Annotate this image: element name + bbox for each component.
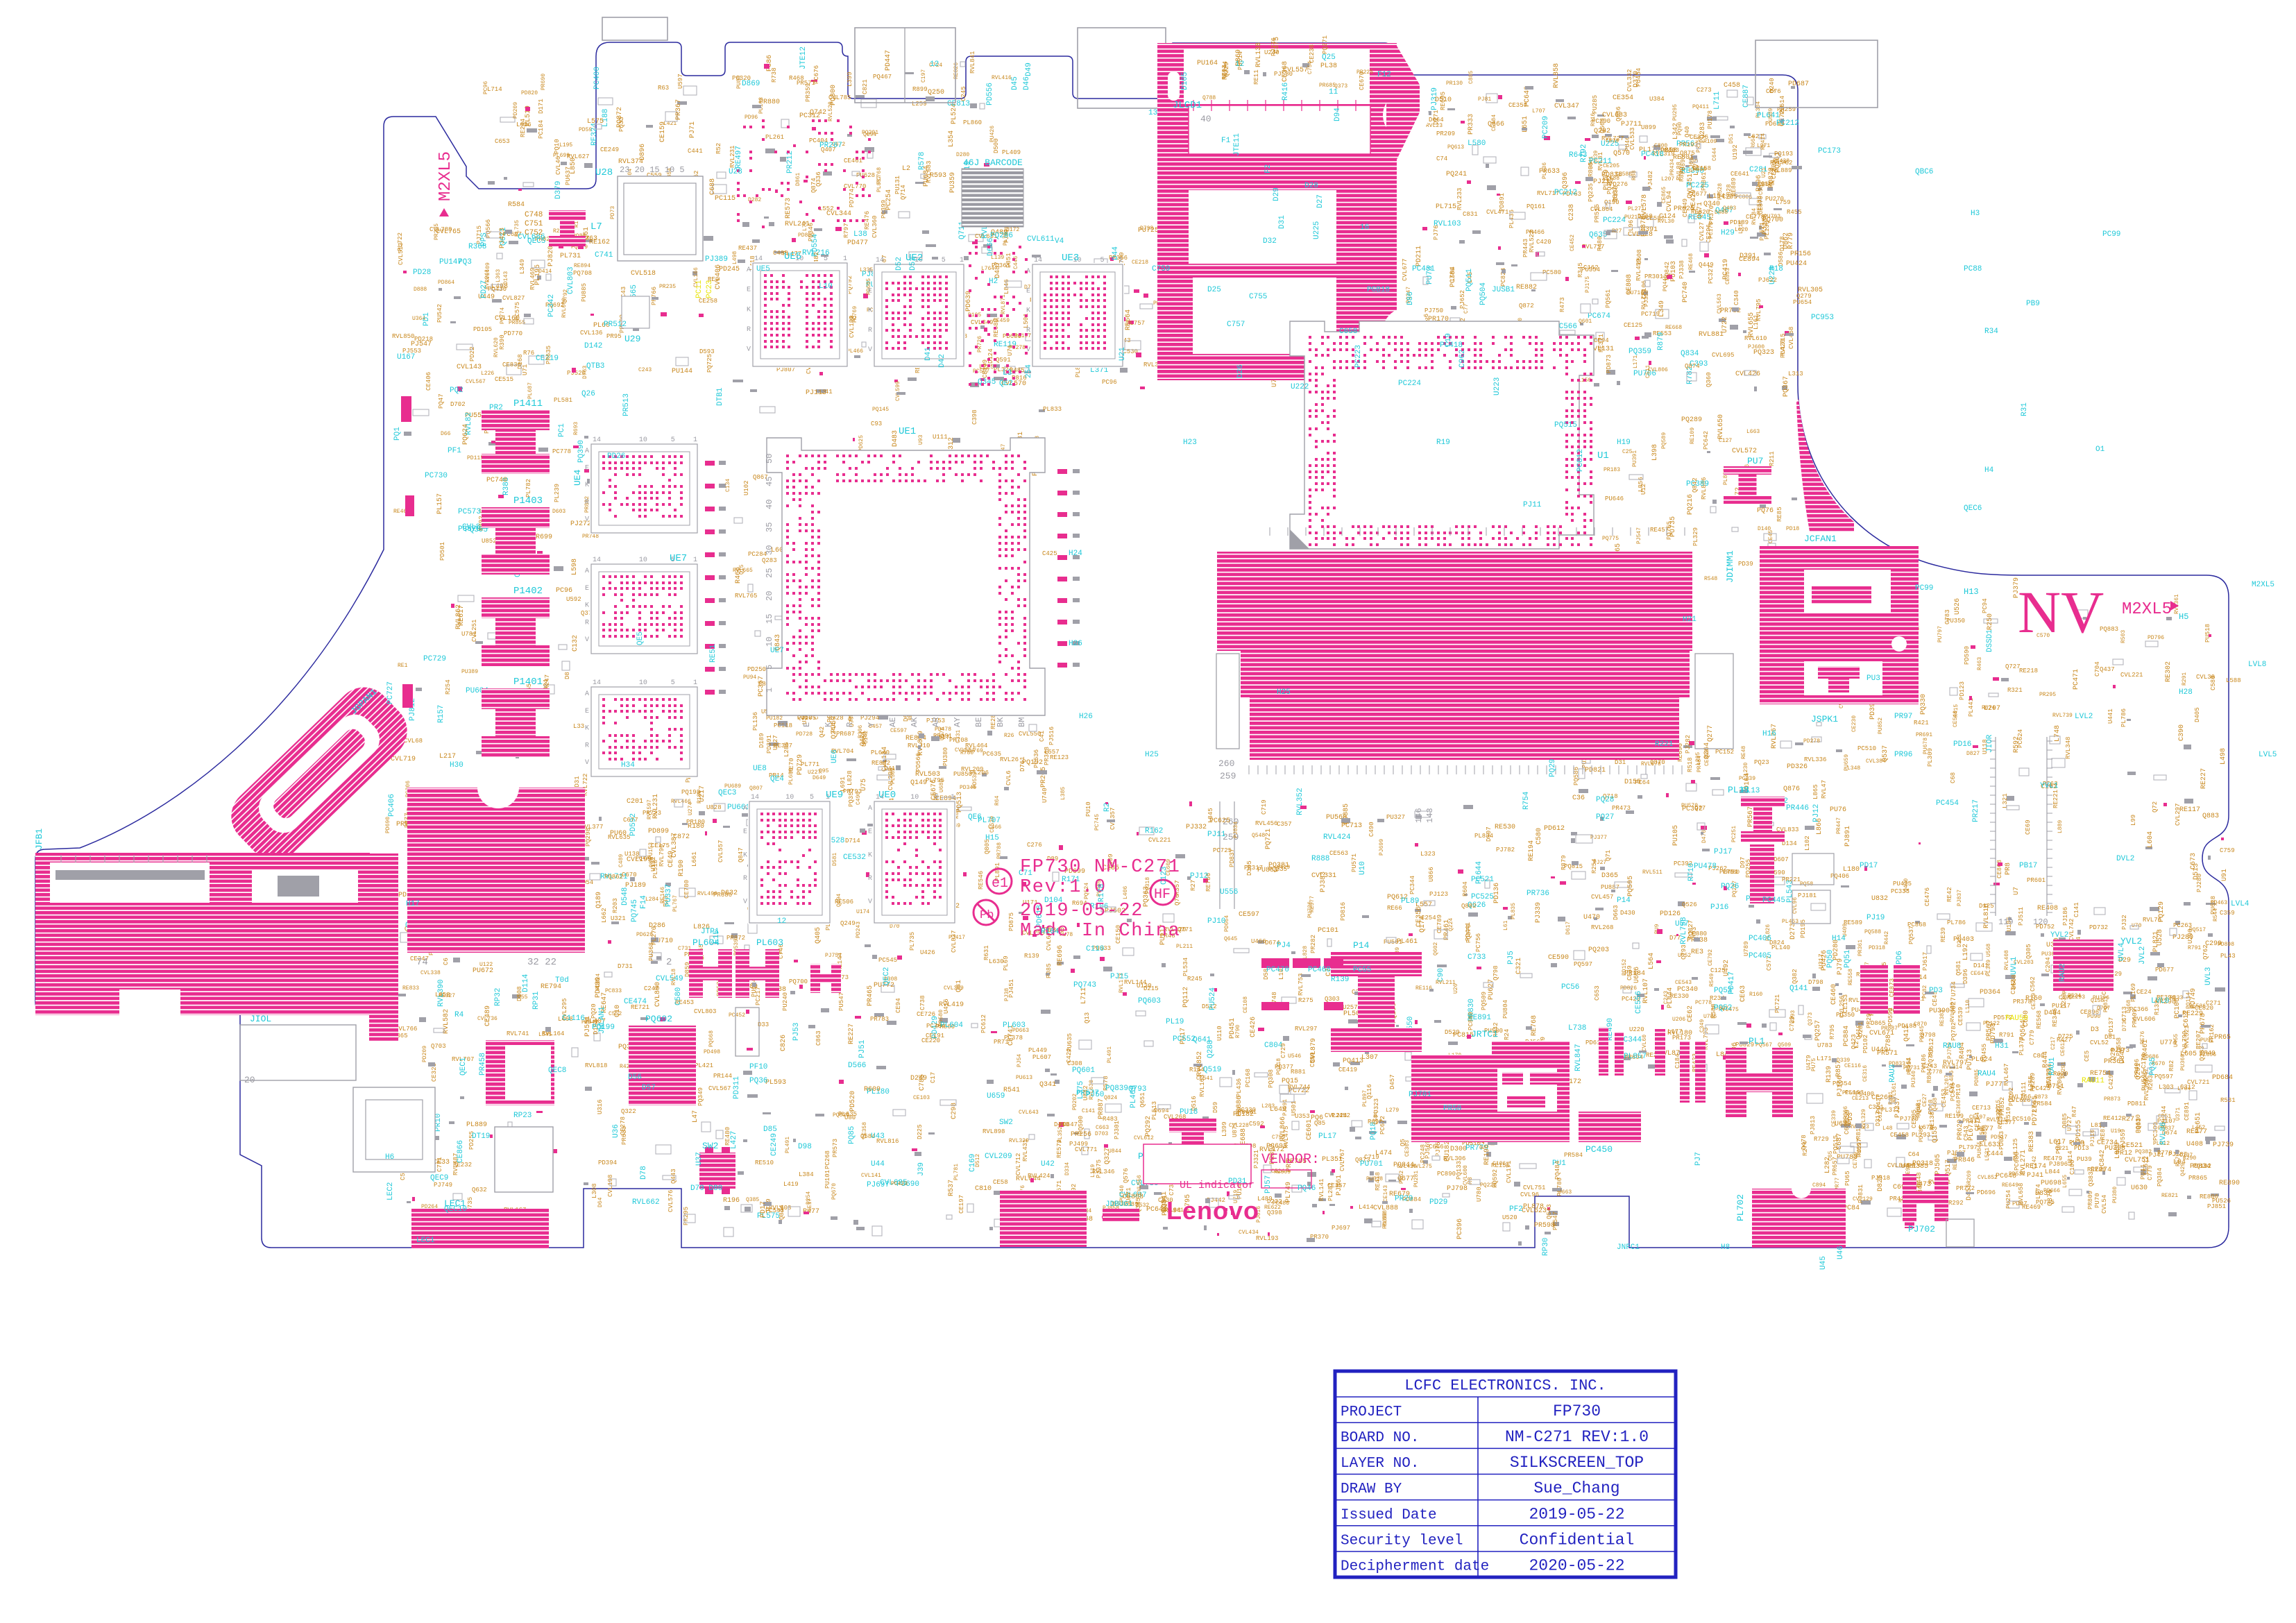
- svg-text:L282: L282: [1824, 1157, 1832, 1173]
- svg-text:PL680: PL680: [788, 768, 794, 785]
- svg-text:PC570: PC570: [458, 525, 481, 534]
- svg-text:PD155: PD155: [2075, 1120, 2083, 1141]
- svg-text:PQ513: PQ513: [956, 792, 964, 813]
- svg-text:PJ17: PJ17: [1714, 848, 1732, 856]
- svg-text:PJ19: PJ19: [1866, 914, 1885, 922]
- svg-text:PQ359: PQ359: [1629, 348, 1651, 356]
- svg-text:PD96: PD96: [745, 114, 758, 121]
- svg-text:PQ330: PQ330: [1920, 694, 1928, 715]
- svg-text:SW2: SW2: [702, 1141, 718, 1151]
- svg-text:PC740: PC740: [1682, 282, 1690, 303]
- svg-text:PU850: PU850: [953, 771, 972, 778]
- svg-text:PQ602: PQ602: [645, 1014, 672, 1024]
- svg-text:PC452: PC452: [729, 1012, 745, 1019]
- svg-text:U12: U12: [1640, 484, 1647, 495]
- svg-text:R754: R754: [1522, 791, 1531, 810]
- svg-text:H34: H34: [621, 761, 635, 770]
- svg-text:PR65: PR65: [2214, 1034, 2231, 1042]
- svg-text:RVL469: RVL469: [529, 268, 536, 290]
- svg-text:PC778: PC778: [552, 448, 571, 455]
- svg-text:CE125: CE125: [1624, 322, 1642, 329]
- svg-text:R797: R797: [843, 223, 850, 238]
- svg-text:PD816: PD816: [1340, 902, 1347, 921]
- svg-text:PD447: PD447: [885, 50, 892, 71]
- svg-text:D97: D97: [1740, 857, 1746, 868]
- svg-text:U122: U122: [479, 962, 493, 968]
- svg-text:PQ2: PQ2: [450, 386, 464, 395]
- svg-text:PC88: PC88: [1964, 265, 1982, 273]
- svg-text:L759: L759: [1776, 199, 1791, 206]
- svg-text:R274: R274: [1802, 1141, 1809, 1156]
- svg-text:H28: H28: [2179, 688, 2193, 697]
- svg-text:CVL297: CVL297: [2175, 804, 2182, 826]
- svg-text:NV: NV: [2018, 579, 2104, 645]
- svg-text:PD17: PD17: [760, 1201, 767, 1218]
- svg-text:PD123: PD123: [1959, 681, 1966, 700]
- svg-text:U225: U225: [1313, 221, 1321, 239]
- svg-text:U321: U321: [611, 915, 626, 922]
- svg-text:RVL741: RVL741: [507, 1030, 529, 1037]
- svg-text:PR571: PR571: [1877, 1050, 1898, 1057]
- svg-text:PD61: PD61: [1585, 1039, 1601, 1046]
- svg-text:A: A: [868, 268, 872, 275]
- svg-text:PJ77: PJ77: [1986, 1081, 2002, 1089]
- svg-text:PD441: PD441: [1465, 922, 1472, 941]
- svg-text:L575: L575: [587, 118, 604, 126]
- svg-text:H6: H6: [385, 1153, 394, 1162]
- svg-text:H4: H4: [1984, 466, 1994, 475]
- svg-text:PC612: PC612: [980, 1014, 987, 1033]
- svg-text:C238: C238: [1568, 204, 1576, 221]
- svg-text:RVL193: RVL193: [1256, 1235, 1278, 1242]
- svg-text:D586: D586: [1778, 251, 1785, 266]
- svg-text:U174: U174: [856, 909, 869, 915]
- svg-text:D649: D649: [813, 775, 826, 781]
- svg-text:CVL60: CVL60: [1642, 1035, 1648, 1051]
- svg-text:Q396: Q396: [1562, 172, 1570, 189]
- svg-text:RVL336: RVL336: [1804, 756, 1826, 763]
- svg-text:CVL331: CVL331: [1311, 872, 1336, 880]
- svg-text:CE452: CE452: [1570, 235, 1576, 251]
- svg-text:JIOR: JIOR: [1986, 734, 1994, 753]
- svg-text:D142: D142: [584, 342, 602, 350]
- svg-text:D457: D457: [1389, 1074, 1396, 1089]
- svg-text:RVL522: RVL522: [1529, 230, 1536, 253]
- svg-text:Q407: Q407: [821, 146, 836, 153]
- svg-text:PC727: PC727: [386, 681, 395, 704]
- svg-text:C321: C321: [1515, 958, 1523, 974]
- svg-text:E: E: [585, 585, 589, 593]
- svg-text:U426: U426: [920, 949, 935, 956]
- svg-text:RVL561: RVL561: [1891, 1082, 1898, 1103]
- svg-text:R203: R203: [612, 898, 619, 913]
- svg-text:U192: U192: [1732, 144, 1739, 160]
- svg-text:CVL751: CVL751: [2125, 1157, 2150, 1164]
- svg-text:PJ10: PJ10: [1207, 917, 1225, 926]
- svg-text:PU281: PU281: [1413, 1171, 1420, 1187]
- svg-text:L33: L33: [573, 723, 584, 730]
- svg-text:RVL86: RVL86: [2159, 1122, 2168, 1145]
- svg-text:CE521: CE521: [2122, 1142, 2143, 1150]
- svg-text:RVL141: RVL141: [1318, 1179, 1325, 1201]
- svg-text:CE249: CE249: [770, 1133, 779, 1156]
- svg-text:PC212: PC212: [1776, 119, 1799, 128]
- svg-text:Q793: Q793: [1128, 1085, 1146, 1094]
- svg-text:PC209: PC209: [1542, 116, 1550, 139]
- svg-text:5: 5: [935, 794, 939, 801]
- svg-text:PU144: PU144: [672, 368, 692, 375]
- svg-text:H26: H26: [1079, 713, 1093, 721]
- svg-text:U132: U132: [650, 856, 657, 872]
- svg-text:U227: U227: [808, 770, 821, 776]
- svg-text:D94: D94: [1334, 108, 1342, 121]
- svg-text:CE808: CE808: [1626, 274, 1633, 295]
- svg-text:PL751: PL751: [1719, 869, 1738, 876]
- svg-text:C466: C466: [988, 824, 1001, 831]
- svg-text:PQ271: PQ271: [1322, 35, 1329, 54]
- svg-text:PL782: PL782: [525, 479, 532, 498]
- svg-text:1: 1: [843, 255, 847, 263]
- svg-text:D29: D29: [1273, 187, 1281, 201]
- svg-text:PJ181: PJ181: [1798, 892, 1817, 899]
- svg-text:C254: C254: [1421, 915, 1436, 921]
- svg-text:PC23: PC23: [706, 280, 714, 298]
- svg-text:PL491: PL491: [1107, 1046, 1113, 1063]
- svg-text:CVL96: CVL96: [1792, 897, 1798, 914]
- svg-text:Q20: Q20: [2110, 1048, 2118, 1060]
- svg-text:A: A: [585, 568, 589, 575]
- svg-text:UVL4: UVL4: [2118, 942, 2126, 961]
- svg-text:PC389: PC389: [1686, 480, 1709, 488]
- svg-text:CE887: CE887: [1742, 85, 1751, 108]
- svg-text:PL421: PL421: [695, 1062, 713, 1069]
- svg-text:12: 12: [930, 60, 939, 69]
- svg-text:CVL656: CVL656: [1137, 1175, 1143, 1195]
- svg-text:U492: U492: [1723, 960, 1730, 976]
- svg-text:RVL818: RVL818: [585, 1062, 607, 1069]
- svg-text:PD498: PD498: [704, 1049, 720, 1055]
- svg-text:D225: D225: [917, 1124, 924, 1139]
- svg-text:14: 14: [1034, 257, 1042, 264]
- svg-text:Sue_Chang: Sue_Chang: [1533, 1479, 1619, 1497]
- svg-text:Q548: Q548: [1252, 833, 1265, 839]
- svg-text:D379: D379: [554, 181, 563, 199]
- svg-text:D77: D77: [1669, 935, 1681, 942]
- svg-text:RE229: RE229: [2182, 1010, 2203, 1018]
- svg-text:PC64: PC64: [1635, 779, 1650, 786]
- svg-text:PJ749: PJ749: [2190, 988, 2197, 1009]
- svg-text:Q303: Q303: [1325, 996, 1340, 1003]
- svg-text:PD698: PD698: [1382, 1212, 1388, 1229]
- svg-text:CVL712: CVL712: [1015, 1153, 1022, 1175]
- svg-text:L354: L354: [948, 130, 955, 147]
- svg-text:PF10: PF10: [749, 1063, 767, 1071]
- svg-text:U734: U734: [1950, 981, 1957, 996]
- svg-text:CVL677: CVL677: [1402, 259, 1409, 281]
- svg-text:PL169: PL169: [2130, 983, 2137, 1002]
- svg-text:12: 12: [1235, 60, 1244, 69]
- svg-text:PL329: PL329: [1692, 527, 1699, 546]
- svg-text:RE882: RE882: [1516, 284, 1537, 291]
- svg-text:R: R: [585, 619, 589, 627]
- svg-text:C245: C245: [960, 86, 967, 101]
- svg-text:U44: U44: [871, 1160, 885, 1169]
- svg-text:C340: C340: [1733, 290, 1740, 305]
- svg-text:PC833: PC833: [605, 988, 622, 994]
- svg-text:PC450: PC450: [1585, 1144, 1613, 1155]
- svg-text:LEC1: LEC1: [416, 1237, 435, 1245]
- svg-text:Q883: Q883: [2202, 813, 2219, 820]
- svg-text:R291: R291: [2182, 672, 2188, 686]
- svg-text:H31: H31: [1995, 1042, 2009, 1051]
- svg-text:Q882: Q882: [1461, 903, 1477, 910]
- svg-text:RVL408: RVL408: [2004, 950, 2010, 970]
- svg-text:L323: L323: [1420, 851, 1436, 858]
- svg-text:CE218: CE218: [1132, 260, 1148, 266]
- svg-text:PQ53: PQ53: [1714, 987, 1732, 995]
- svg-text:V: V: [585, 759, 589, 767]
- svg-text:RVL511: RVL511: [1642, 869, 1663, 876]
- svg-text:U316: U316: [597, 1099, 604, 1114]
- svg-text:PR217: PR217: [1972, 799, 1980, 822]
- svg-text:H21: H21: [1683, 615, 1697, 624]
- svg-text:5: 5: [824, 255, 828, 263]
- svg-text:L321: L321: [2002, 793, 2009, 808]
- svg-text:PQ589: PQ589: [1661, 432, 1667, 449]
- svg-text:D41: D41: [924, 347, 933, 361]
- svg-text:PC431: PC431: [1412, 265, 1435, 273]
- svg-text:PR301: PR301: [1644, 273, 1663, 280]
- svg-text:R250: R250: [1987, 613, 1994, 630]
- svg-text:L207: L207: [1661, 176, 1674, 182]
- svg-text:U871: U871: [1232, 1122, 1239, 1137]
- svg-text:PC86: PC86: [766, 55, 774, 71]
- svg-text:PQ500: PQ500: [1078, 1116, 1085, 1135]
- svg-text:RVL739: RVL739: [2052, 713, 2073, 719]
- svg-text:D281: D281: [1857, 1021, 1864, 1037]
- svg-text:R139: R139: [1331, 976, 1349, 984]
- svg-text:LVL0: LVL0: [2151, 997, 2169, 1005]
- svg-text:PQ10: PQ10: [554, 139, 561, 154]
- svg-text:PU885: PU885: [581, 283, 588, 302]
- svg-text:C894: C894: [1812, 1182, 1826, 1189]
- svg-text:CVL224: CVL224: [1325, 1112, 1347, 1119]
- svg-text:RVL180: RVL180: [1667, 1030, 1692, 1037]
- svg-text:H15: H15: [985, 834, 999, 842]
- svg-text:20: 20: [765, 591, 774, 601]
- svg-text:PL491: PL491: [785, 1137, 791, 1153]
- svg-text:R: R: [743, 875, 747, 883]
- svg-text:PQ193: PQ193: [1774, 151, 1793, 158]
- svg-text:PL349: PL349: [1986, 960, 1992, 976]
- svg-text:PL635: PL635: [838, 1111, 857, 1118]
- svg-text:PJ12: PJ12: [1190, 872, 1208, 881]
- svg-text:RE577: RE577: [1309, 896, 1316, 912]
- svg-text:Q42: Q42: [819, 726, 826, 738]
- svg-text:PU3: PU3: [1866, 674, 1880, 683]
- svg-text:U371: U371: [2175, 1107, 2182, 1121]
- svg-text:R170: R170: [1098, 884, 1106, 902]
- svg-text:DT19: DT19: [472, 1132, 490, 1141]
- svg-text:PD27: PD27: [480, 280, 488, 298]
- svg-text:L96: L96: [1628, 220, 1635, 231]
- svg-text:D430: D430: [1620, 910, 1635, 917]
- svg-text:Q26: Q26: [581, 390, 595, 398]
- svg-text:L81: L81: [2091, 1122, 2102, 1129]
- svg-text:P1411: P1411: [513, 398, 543, 409]
- svg-text:U786: U786: [1703, 1014, 1717, 1020]
- svg-text:U470: U470: [1583, 914, 1600, 921]
- svg-text:CVL171: CVL171: [1506, 1161, 1513, 1183]
- svg-text:5: 5: [671, 436, 675, 444]
- svg-text:Q437: Q437: [2100, 666, 2115, 673]
- svg-text:R139: R139: [1024, 953, 1039, 960]
- svg-text:PD732: PD732: [2089, 924, 2108, 931]
- svg-text:C273: C273: [1697, 87, 1712, 94]
- svg-text:PR97: PR97: [1894, 713, 1912, 721]
- svg-text:U222: U222: [1291, 383, 1309, 391]
- svg-text:Q189: Q189: [595, 892, 603, 908]
- svg-text:PL420: PL420: [1780, 339, 1787, 358]
- svg-text:PU424: PU424: [1786, 260, 1807, 268]
- svg-text:PR156: PR156: [1790, 250, 1811, 258]
- svg-text:PL857: PL857: [1624, 1053, 1647, 1061]
- svg-text:CVL209: CVL209: [985, 1153, 1012, 1161]
- svg-text:H8: H8: [1721, 1243, 1730, 1252]
- svg-text:V: V: [747, 346, 751, 354]
- svg-text:C106: C106: [1493, 1161, 1506, 1167]
- svg-text:PL449: PL449: [1028, 1047, 1047, 1054]
- svg-text:L661: L661: [691, 851, 698, 867]
- svg-text:UE9: UE9: [826, 790, 843, 801]
- svg-text:PQ668: PQ668: [708, 1030, 715, 1047]
- svg-text:P1403: P1403: [513, 495, 543, 507]
- svg-text:C653: C653: [495, 138, 510, 145]
- svg-text:U466: U466: [1251, 938, 1266, 945]
- svg-text:PJ617: PJ617: [1922, 952, 1929, 971]
- svg-text:C748: C748: [525, 211, 543, 219]
- svg-text:CE556: CE556: [1635, 991, 1643, 1014]
- svg-text:C123: C123: [1160, 867, 1168, 885]
- svg-text:PL13: PL13: [1742, 787, 1760, 795]
- svg-text:D566: D566: [848, 1062, 866, 1070]
- svg-text:PC115: PC115: [715, 195, 735, 203]
- svg-text:PL780: PL780: [1556, 1178, 1563, 1196]
- svg-text:L48: L48: [1882, 1125, 1893, 1132]
- svg-text:UE1: UE1: [899, 426, 916, 437]
- svg-text:CE532: CE532: [843, 853, 866, 862]
- svg-text:PC953: PC953: [1811, 314, 1834, 322]
- svg-text:R269: R269: [1966, 1171, 1973, 1184]
- svg-text:T0d: T0d: [555, 976, 569, 985]
- svg-text:Q5: Q5: [1400, 1139, 1406, 1146]
- svg-text:CVL557: CVL557: [717, 840, 724, 863]
- svg-text:CVL554: CVL554: [955, 747, 975, 754]
- svg-text:PJ11: PJ11: [1207, 831, 1226, 839]
- svg-text:L427: L427: [730, 1131, 738, 1149]
- svg-text:UE5: UE5: [756, 265, 770, 273]
- svg-text:PL833: PL833: [1043, 406, 1062, 413]
- svg-text:RE221: RE221: [2052, 790, 2059, 808]
- svg-text:RVL352: RVL352: [1296, 788, 1304, 815]
- svg-text:PR333: PR333: [1468, 114, 1475, 135]
- svg-text:R: R: [585, 499, 589, 507]
- svg-text:RE583: RE583: [1756, 196, 1763, 214]
- svg-text:E: E: [868, 829, 872, 836]
- svg-text:PQ775: PQ775: [1602, 536, 1619, 542]
- svg-text:PC525: PC525: [1471, 893, 1494, 901]
- svg-text:D827: D827: [1966, 751, 1980, 757]
- svg-text:Y: Y: [867, 722, 876, 727]
- svg-text:R160: R160: [1749, 992, 1762, 998]
- svg-text:R396: R396: [858, 725, 864, 738]
- svg-text:CVL567: CVL567: [466, 379, 486, 385]
- svg-text:CE39: CE39: [1626, 965, 1633, 980]
- svg-text:PQ384: PQ384: [2157, 1168, 2163, 1187]
- svg-text:CE891: CE891: [2184, 1102, 2191, 1121]
- svg-text:L399: L399: [1221, 1121, 1228, 1137]
- svg-text:PD18: PD18: [1786, 526, 1799, 532]
- svg-text:JLCD1: JLCD1: [1173, 100, 1202, 111]
- svg-text:RE469: RE469: [2022, 1204, 2041, 1211]
- svg-text:H23: H23: [1183, 439, 1197, 447]
- svg-text:Q666: Q666: [1488, 121, 1504, 128]
- svg-text:L259: L259: [912, 101, 927, 108]
- svg-text:PL699: PL699: [553, 153, 570, 159]
- svg-text:H13: H13: [1964, 587, 1979, 597]
- svg-text:PD774: PD774: [849, 189, 856, 207]
- svg-text:PC740: PC740: [486, 477, 507, 484]
- svg-text:PC344: PC344: [1409, 876, 1416, 894]
- svg-text:PD647: PD647: [1059, 1121, 1078, 1128]
- svg-text:U710: U710: [656, 937, 673, 945]
- svg-text:PL781: PL781: [953, 1164, 960, 1180]
- svg-text:PR573: PR573: [832, 1139, 839, 1157]
- svg-text:R873: R873: [2034, 1094, 2048, 1101]
- svg-text:PD639: PD639: [965, 291, 973, 312]
- svg-text:PR793: PR793: [843, 788, 862, 795]
- svg-text:PJ702: PJ702: [1908, 1224, 1935, 1234]
- svg-text:QEC2: QEC2: [883, 967, 891, 985]
- svg-text:PJ282: PJ282: [1685, 735, 1692, 754]
- svg-text:RAU1: RAU1: [2048, 1057, 2057, 1076]
- svg-text:PR359: PR359: [805, 83, 812, 102]
- svg-text:PROJECT: PROJECT: [1341, 1404, 1402, 1420]
- svg-text:R779: R779: [1787, 232, 1795, 249]
- svg-text:C398: C398: [971, 409, 978, 425]
- svg-text:PR567: PR567: [1986, 1020, 1993, 1041]
- svg-text:AR: AR: [931, 717, 941, 727]
- svg-text:PJ782: PJ782: [1496, 847, 1515, 853]
- svg-text:PJ389: PJ389: [705, 255, 728, 264]
- svg-text:RE1: RE1: [398, 663, 408, 669]
- svg-text:Q651: Q651: [1139, 1092, 1146, 1107]
- svg-text:PL735: PL735: [514, 220, 520, 237]
- svg-text:PD209: PD209: [422, 1046, 428, 1062]
- svg-text:UE8: UE8: [753, 765, 767, 773]
- svg-text:D44: D44: [1112, 246, 1120, 260]
- svg-text:PL534: PL534: [1182, 958, 1189, 976]
- svg-text:RE437: RE437: [738, 245, 757, 252]
- svg-text:PJ891: PJ891: [1844, 826, 1852, 847]
- svg-text:C666: C666: [1429, 1144, 1444, 1150]
- svg-text:260: 260: [1218, 758, 1234, 769]
- svg-text:PQ203: PQ203: [1588, 946, 1609, 954]
- svg-text:RE510: RE510: [755, 1159, 774, 1166]
- svg-text:PJ520: PJ520: [567, 370, 586, 377]
- svg-text:PC725: PC725: [1213, 847, 1232, 854]
- svg-text:PR71: PR71: [994, 1039, 1009, 1046]
